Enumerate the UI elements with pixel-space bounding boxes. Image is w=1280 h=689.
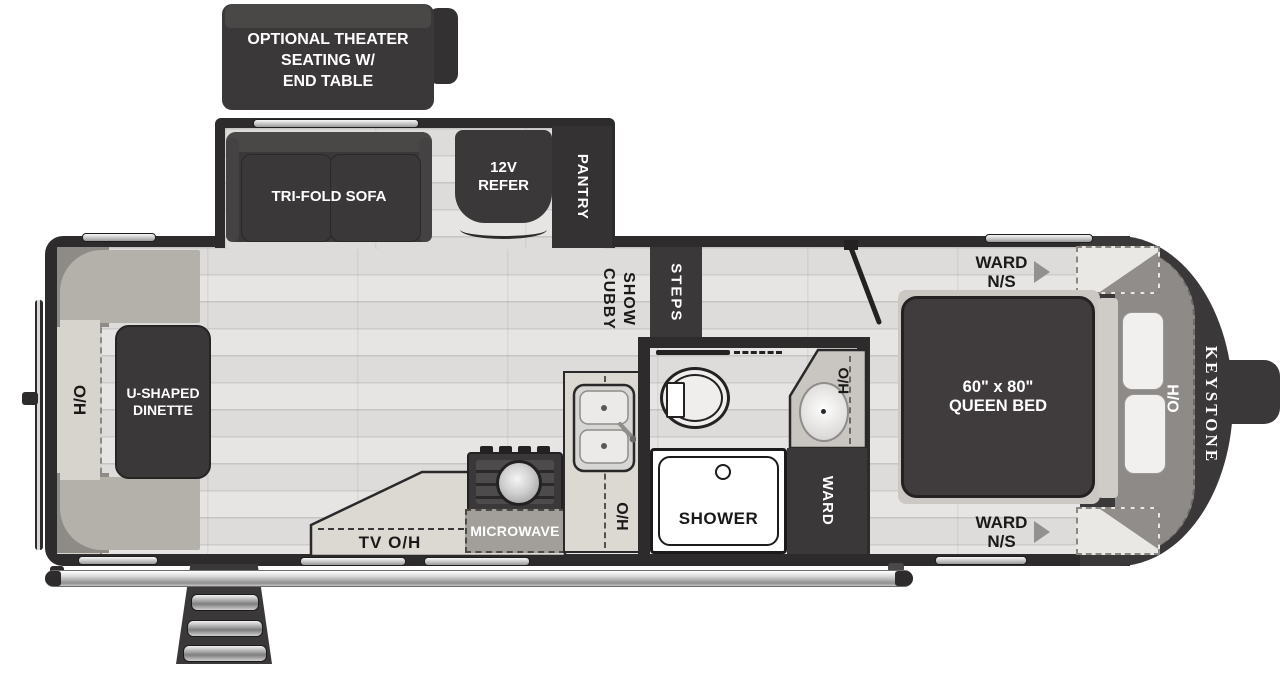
kitchen-sink	[572, 383, 636, 473]
window	[985, 234, 1093, 243]
bath-hutch-label-wrap: H/O	[832, 354, 856, 408]
tri-fold-sofa: TRI-FOLD SOFA	[226, 132, 432, 242]
window	[424, 557, 530, 566]
ward-arrow-icon	[1034, 261, 1050, 283]
ward-ns-cabinet-bottom	[1076, 507, 1160, 555]
headboard-hutch-wrap: H/O	[1156, 366, 1186, 430]
shower-stall: SHOWER	[650, 448, 787, 554]
entry-step-tread	[187, 620, 263, 637]
brand-wrap: KEYSTONE	[1194, 322, 1228, 487]
window	[82, 233, 156, 242]
show-cubby-label-wrap: SHOW CUBBY	[592, 252, 644, 346]
refrigerator: 12V REFER	[455, 130, 552, 223]
toilet	[660, 367, 730, 429]
shower-drain	[715, 464, 731, 480]
sink-hutch-label-wrap: H/O	[610, 490, 638, 542]
floorplan-canvas: TRI-FOLD SOFA 12V REFER PANTRY O/H U-SHA…	[0, 0, 1280, 689]
ward-arrow-icon	[1034, 521, 1050, 543]
bath-sink-drain	[821, 409, 826, 414]
bedding-strip	[1098, 298, 1118, 498]
brand-label: KEYSTONE	[1201, 345, 1221, 463]
dinette-overhead-label: O/H	[69, 385, 89, 415]
bath-wall-top	[638, 337, 870, 348]
bath-wall-left	[638, 337, 650, 554]
pocket-door-track	[734, 351, 782, 354]
slide-window	[253, 119, 419, 128]
ward-ns-bottom-wrap: WARD N/S	[948, 508, 1078, 556]
dinette-bench-top	[60, 250, 200, 323]
interior-steps: STEPS	[650, 247, 702, 339]
slide-out-box: TRI-FOLD SOFA 12V REFER PANTRY	[215, 118, 615, 248]
refrigerator-vent-arc	[460, 220, 547, 239]
bedroom-door	[840, 238, 890, 330]
shower-label: SHOWER	[653, 509, 784, 529]
microwave-label: MICROWAVE	[470, 523, 560, 540]
dinette-label: U-SHAPED DINETTE	[126, 385, 199, 418]
tv-overhead-dash	[318, 528, 464, 530]
stove-burner	[496, 460, 542, 506]
theater-label: OPTIONAL THEATER SEATING W/ END TABLE	[222, 30, 434, 92]
toilet-tank	[666, 382, 685, 418]
dinette-overhead-label-wrap: O/H	[60, 370, 98, 430]
queen-bed-label: 60" x 80" QUEEN BED	[949, 378, 1047, 417]
pocket-door	[656, 350, 730, 355]
window	[300, 557, 406, 566]
refrigerator-label: 12V REFER	[478, 159, 529, 194]
pantry-cabinet: PANTRY	[552, 126, 612, 248]
bath-wardrobe: WARD	[787, 448, 867, 554]
pantry-label: PANTRY	[573, 154, 591, 220]
microwave-cabinet: MICROWAVE	[465, 509, 565, 553]
ward-ns-bottom-label: WARD N/S	[976, 513, 1028, 551]
theater-seating-option: OPTIONAL THEATER SEATING W/ END TABLE	[222, 4, 434, 110]
corner-wedge	[1092, 250, 1158, 292]
dinette-bench-bottom	[60, 477, 200, 550]
sofa-label: TRI-FOLD SOFA	[226, 188, 432, 206]
awning-rod	[45, 570, 913, 587]
bath-hutch-label: H/O	[835, 368, 853, 395]
stove-range	[467, 452, 563, 514]
tv-overhead-label: TV O/H	[326, 533, 454, 553]
rear-bumper	[35, 300, 43, 550]
theater-backrest	[225, 4, 431, 28]
sink-hutch-label: H/O	[615, 502, 634, 530]
show-cubby-label: SHOW CUBBY	[598, 268, 638, 330]
sofa-backrest	[226, 132, 432, 152]
entry-step-tread	[183, 645, 267, 662]
ward-ns-top-wrap: WARD N/S	[948, 248, 1078, 296]
corner-wedge	[1092, 509, 1158, 551]
ward-ns-cabinet-top	[1076, 246, 1160, 294]
steps-label: STEPS	[667, 263, 685, 322]
bath-wardrobe-label: WARD	[818, 476, 836, 526]
rear-hitch-stub	[22, 392, 38, 405]
window	[78, 556, 158, 565]
headboard-hutch-label: H/O	[1162, 384, 1181, 412]
entry-step-tread	[191, 594, 259, 611]
queen-bed: 60" x 80" QUEEN BED	[901, 296, 1095, 498]
awning-rod-cap-left	[45, 571, 61, 586]
awning-rod-cap-right	[895, 571, 913, 586]
dinette-table: U-SHAPED DINETTE	[115, 325, 211, 479]
ward-ns-top-label: WARD N/S	[976, 253, 1028, 291]
window	[935, 556, 1027, 565]
